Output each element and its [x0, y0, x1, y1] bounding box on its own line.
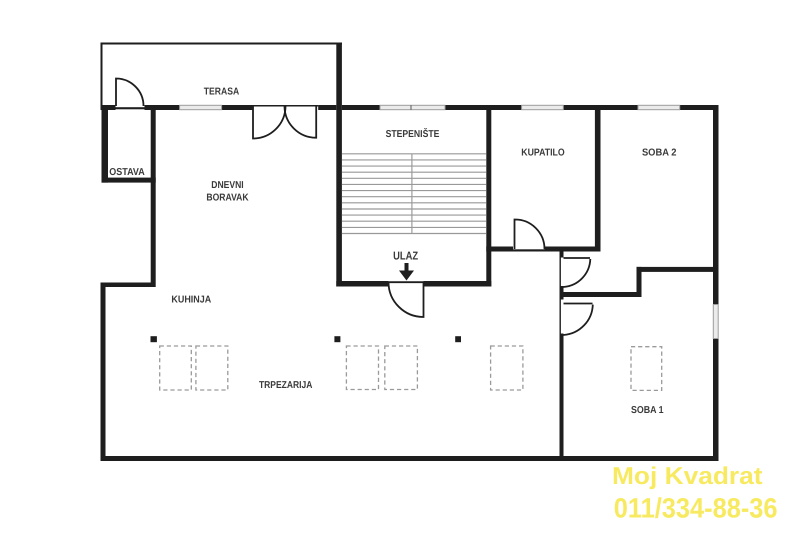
- svg-text:OSTAVA: OSTAVA: [109, 167, 144, 178]
- svg-text:KUHINJA: KUHINJA: [171, 294, 211, 305]
- svg-text:SOBA 1: SOBA 1: [631, 405, 664, 416]
- svg-text:BORAVAK: BORAVAK: [206, 192, 249, 203]
- svg-text:TRPEZARIJA: TRPEZARIJA: [259, 380, 313, 391]
- svg-text:011/334-88-36: 011/334-88-36: [614, 493, 778, 524]
- svg-text:SOBA 2: SOBA 2: [642, 147, 677, 158]
- svg-text:STEPENIŠTE: STEPENIŠTE: [386, 128, 440, 140]
- svg-text:ULAZ: ULAZ: [393, 251, 418, 263]
- svg-text:DNEVNI: DNEVNI: [211, 180, 244, 191]
- svg-text:Moj Kvadrat: Moj Kvadrat: [612, 463, 763, 490]
- svg-text:TERASA: TERASA: [204, 87, 239, 98]
- svg-text:KUPATILO: KUPATILO: [521, 147, 565, 158]
